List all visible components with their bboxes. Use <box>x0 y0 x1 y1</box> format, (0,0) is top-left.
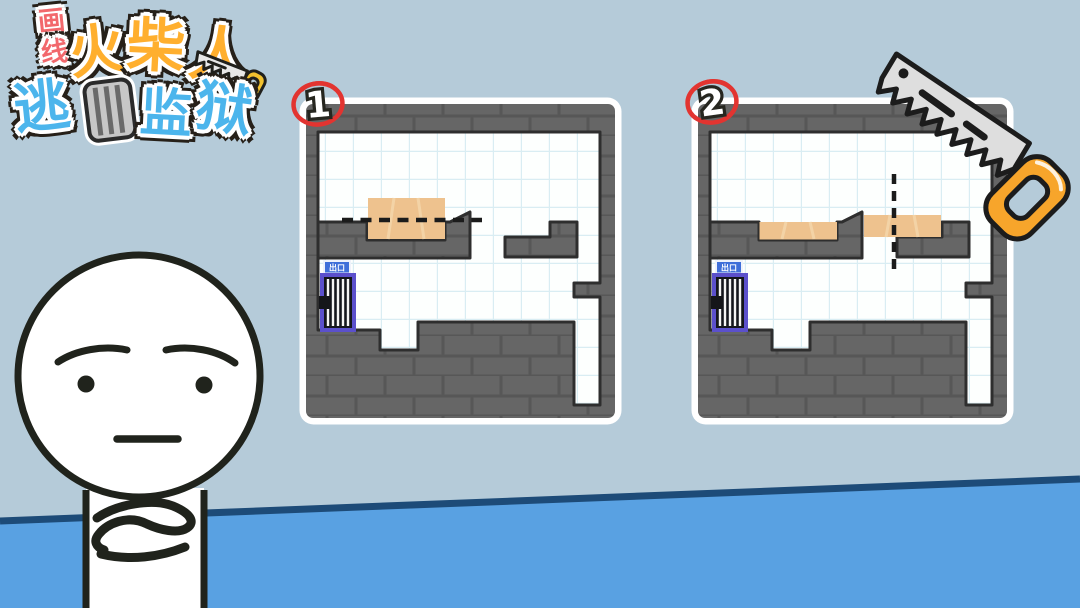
exit-sign-text: 出口 <box>329 263 345 273</box>
logo-char-prefix-2: 线 <box>40 38 69 67</box>
level-step-panel-1[interactable]: 出口 <box>298 96 623 426</box>
logo-char-prefix-1: 画 <box>37 7 67 37</box>
logo-char-suffix-1: 逃 <box>11 77 73 139</box>
wooden-piece-left <box>760 222 838 240</box>
step-badge-2: 2 <box>684 76 740 128</box>
logo-char-suffix-2: 监 <box>139 87 194 142</box>
door-lock <box>711 296 723 309</box>
exit-sign-text: 出口 <box>721 263 737 273</box>
character-head <box>18 255 260 497</box>
saw-blade <box>870 54 1034 181</box>
prison-door: 出口 <box>319 261 354 330</box>
prison-door: 出口 <box>711 261 746 330</box>
step-number: 2 <box>697 81 728 125</box>
door-lock <box>319 296 331 309</box>
game-logo: 画 线 火 柴 人 逃 监 狱 <box>8 2 288 167</box>
step-number: 1 <box>304 84 333 127</box>
step-badge-1: 1 <box>290 78 346 130</box>
jail-cage-icon <box>82 74 140 148</box>
left-eye <box>78 376 95 393</box>
right-eye <box>196 377 213 394</box>
game-scene: 出口 <box>0 0 1080 608</box>
hand-saw-icon <box>852 24 1080 224</box>
logo-char-main-2: 柴 <box>126 16 187 77</box>
logo-char-suffix-3: 狱 <box>192 78 255 141</box>
thinking-stickman <box>0 240 280 608</box>
